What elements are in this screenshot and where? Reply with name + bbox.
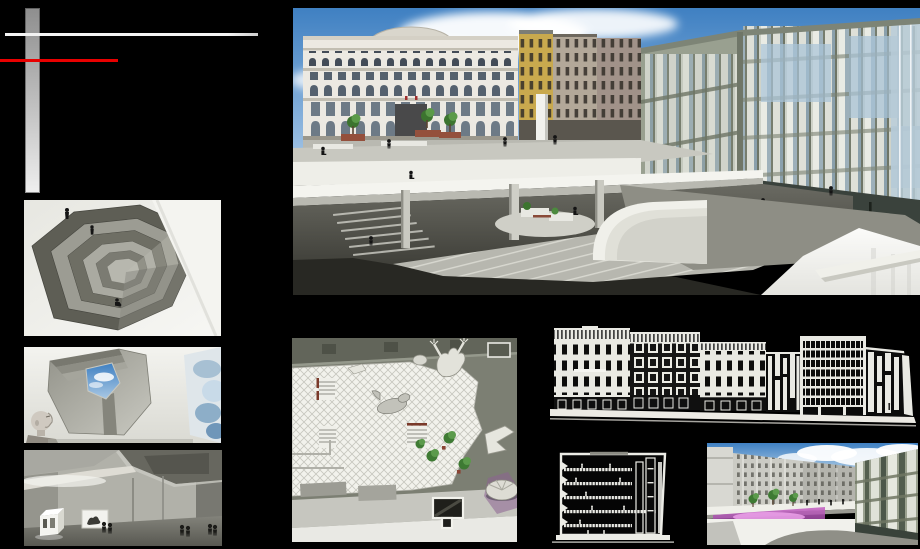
base-slab: [556, 535, 670, 540]
modern-building: [855, 449, 918, 545]
glass-fin: [891, 24, 920, 224]
building-e-modern: [800, 336, 866, 415]
sky-reflection-panel: [184, 347, 221, 443]
building-b-classical: [630, 332, 700, 410]
sculpture-fan: [486, 480, 517, 501]
panel-gallery: [24, 450, 222, 546]
horizontal-white-line: [5, 33, 258, 36]
roof-strip: [590, 452, 628, 455]
panel-street-elevation: [548, 325, 918, 428]
sculpture-small: [413, 355, 427, 365]
column: [132, 478, 134, 524]
panel-plaza-panorama: [293, 8, 920, 295]
panel-skylight: [24, 347, 221, 443]
panel-plaza-deck-render: [707, 443, 918, 545]
panel-building-section: [552, 440, 674, 544]
building-a-classical: [554, 326, 630, 410]
architecture-portfolio-board: [0, 0, 920, 549]
column: [162, 476, 164, 524]
building-c-classical: [700, 342, 766, 411]
building-d-modern: [766, 352, 800, 412]
horizontal-red-line: [0, 59, 118, 62]
panel-site-plan: [292, 338, 517, 542]
classical-building: [303, 27, 518, 142]
skylight-box: [488, 343, 510, 357]
panel-spiral-ramp: [24, 200, 221, 336]
building-f-modern: [866, 347, 914, 419]
